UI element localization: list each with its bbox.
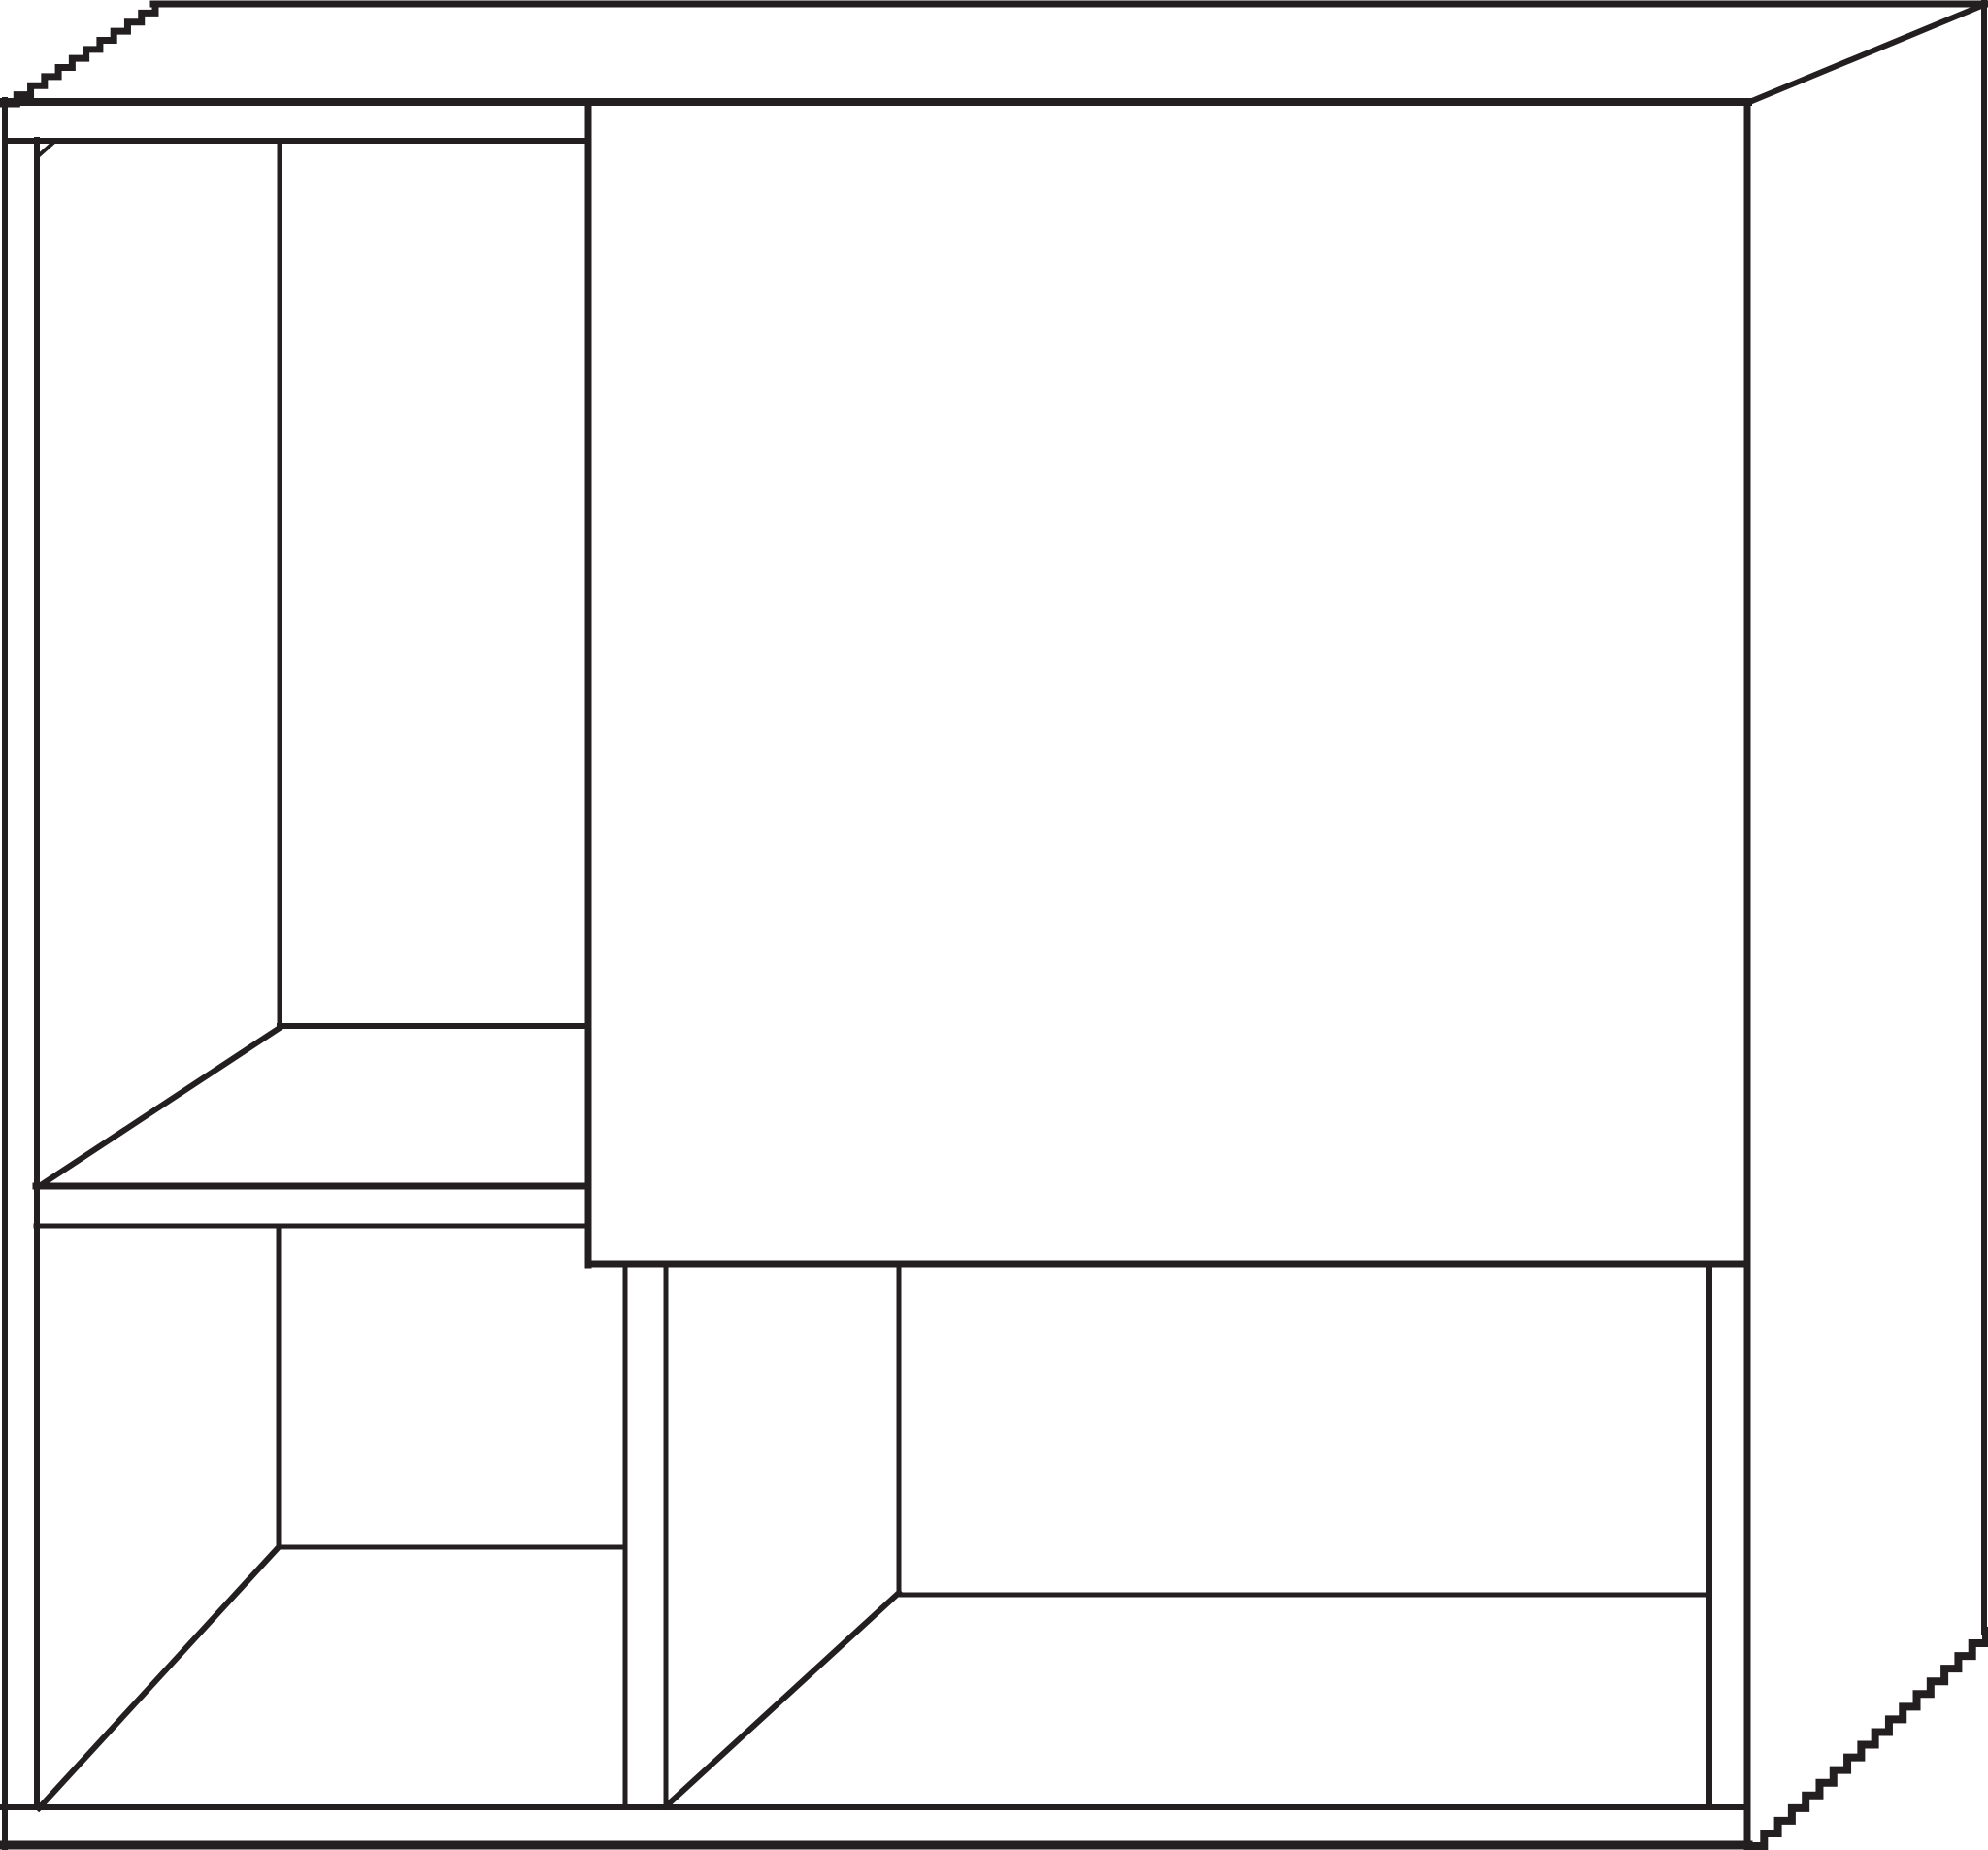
- top-right-depth-edge: [1747, 4, 1986, 103]
- cabinet-diagram: [0, 0, 1988, 1850]
- cabinet-line-art: [0, 0, 1988, 1850]
- upper-floor-left-depth-line: [38, 1028, 280, 1187]
- bottom-right-depth-edge: [1750, 1631, 1986, 1846]
- upper-ceiling-left-depth-stub: [38, 142, 54, 156]
- top-left-depth-edge: [3, 4, 155, 104]
- lower-floor-left-depth-line: [39, 1547, 279, 1808]
- divider-floor-depth-line: [666, 1593, 899, 1806]
